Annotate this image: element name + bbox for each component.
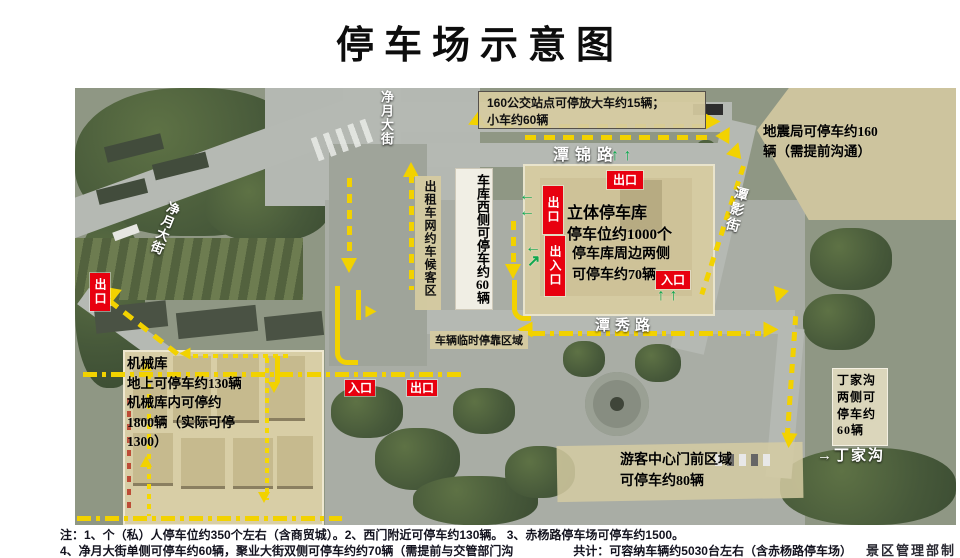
route-solid-curve — [512, 280, 531, 321]
garage-label: 立体停车库 停车位约1000个 — [567, 202, 672, 247]
yellow-arrowhead-icon — [341, 258, 357, 273]
yellow-arrowhead-icon — [258, 492, 270, 503]
vegetation-patch — [635, 344, 681, 382]
mech-line2: 地上可停车约130辆 — [127, 374, 242, 394]
garage-around-line1: 停车库周边两侧 — [572, 244, 670, 265]
dingjiagou-text: 丁家沟 — [834, 447, 885, 464]
mech-line5: 1300） — [127, 432, 242, 452]
parked-car — [739, 454, 746, 466]
yellow-arrowhead-icon — [403, 162, 419, 177]
green-ne-arrow-icon: ↗ — [527, 254, 540, 270]
building-dark — [264, 311, 324, 341]
gate-entrance-plaza: 入口 — [345, 380, 375, 396]
page-title: 停车场示意图 — [0, 14, 960, 69]
route-dot-depot-right — [265, 358, 269, 500]
mech-line1: 机械库 — [127, 354, 242, 374]
garage-west-unit: 辆 — [475, 291, 490, 304]
gate-exit-plaza: 出口 — [407, 380, 437, 396]
vegetation-patch — [803, 294, 875, 350]
route-dash-center-south — [347, 178, 352, 260]
visitor-line2: 可停车约80辆 — [620, 471, 732, 492]
yellow-arrowhead-icon — [764, 322, 779, 338]
vegetation-patch — [563, 341, 605, 377]
bus-stop-note-line2: 小车约60辆 — [487, 111, 697, 128]
green-up-arrows-icon: ↑ ↑ — [657, 288, 677, 304]
gate-exit-west: 出口 — [543, 186, 563, 234]
notes-line1: 注：1、个（私）人停车位约350个左右（含商贸城）。2、西门附近可停车约130辆… — [60, 528, 956, 543]
visitor-center-note: 游客中心门前区域 可停车约80辆 — [620, 450, 732, 492]
mech-line4: 1800辆（实际可停 — [127, 413, 242, 433]
green-up-arrows-icon: ↑ ↑ — [611, 148, 631, 164]
notes-line2: 4、净月大街单侧可停车约60辆，聚业大街双侧可停车约约70辆（需提前与交管部门沟… — [60, 544, 521, 558]
building-dark — [176, 305, 258, 339]
visitor-line1: 游客中心门前区域 — [620, 450, 732, 471]
yellow-arrowhead-icon — [780, 432, 797, 448]
road-label-dingjiagou: →丁家沟 — [817, 444, 885, 465]
mech-line3: 机械库内可停约 — [127, 393, 242, 413]
gate-exit-north: 出口 — [607, 171, 643, 189]
gate-exit-entrance-west: 出入口 — [545, 236, 565, 296]
yellow-arrowhead-icon — [268, 382, 280, 393]
route-dash-tanjin — [525, 135, 715, 140]
yellow-arrowhead-icon — [366, 306, 377, 318]
road-label-tanjin: 潭锦路 — [553, 141, 619, 165]
vegetation-patch — [453, 388, 515, 434]
green-left-arrow-icon: ← — [519, 204, 535, 220]
roundabout-center — [610, 397, 624, 411]
garage-west-number: 60 — [475, 278, 490, 291]
parked-car — [751, 454, 758, 466]
taxi-area-label: 出租车网约车候客区 — [415, 176, 441, 310]
right-arrow-icon: → — [817, 447, 834, 464]
satellite-map: 160公交站点可停放大车约15辆； 小车约60辆 出租车网约车候客区 车库西侧可… — [75, 88, 956, 525]
yellow-arrowhead-icon — [505, 264, 521, 279]
notes-credit: 景区管理部制 — [866, 543, 956, 558]
route-dash-center-north — [409, 174, 414, 290]
depot-block — [277, 436, 313, 489]
gate-exit-far-west: 出口 — [90, 273, 110, 311]
road-label-tanxiu: 潭秀路 — [595, 314, 655, 335]
route-solid-line — [275, 356, 280, 382]
parking-schematic-page: 停车场示意图 — [0, 0, 960, 558]
seismic-bureau-note: 地震局可停车约160辆（需提前沟通） — [763, 122, 887, 163]
footer-notes: 注：1、个（私）人停车位约350个左右（含商贸城）。2、西门附近可停车约130辆… — [60, 528, 956, 558]
bus-stop-note-box: 160公交站点可停放大车约15辆； 小车约60辆 — [478, 91, 706, 129]
yellow-arrowhead-icon — [140, 456, 152, 467]
parked-car — [763, 454, 770, 466]
notes-total: 共计：可容纳车辆约5030台左右（含赤杨路停车场） — [573, 544, 852, 558]
garage-west-text: 车库西侧可停车约 — [475, 174, 490, 278]
notes-line2-row: 4、净月大街单侧可停车约60辆，聚业大街双侧可停车约约70辆（需提前与交管部门沟… — [60, 543, 956, 558]
dingjiagou-note: 丁家沟两侧可停车约60辆 — [837, 372, 879, 439]
garage-west-label: 车库西侧可停车约60辆 — [455, 168, 493, 310]
route-dash-garage-west — [511, 221, 516, 267]
route-solid-line — [356, 290, 361, 320]
bus-stop-note-line1: 160公交站点可停放大车约15辆； — [487, 94, 697, 111]
green-left-arrow-icon: ← — [519, 188, 535, 204]
route-solid-curve — [335, 286, 358, 365]
yellow-arrowhead-icon — [706, 114, 721, 130]
road-label-jingyue-north: 净月大街 — [377, 90, 396, 146]
mechanical-depot-note: 机械库 地上可停车约130辆 机械库内可停约 1800辆（实际可停 1300） — [127, 354, 242, 452]
route-dashdot-edge — [77, 516, 342, 521]
garage-name: 立体停车库 — [567, 202, 672, 225]
vegetation-patch — [810, 228, 892, 290]
temp-stop-label: 车辆临时停靠区域 — [430, 331, 528, 349]
